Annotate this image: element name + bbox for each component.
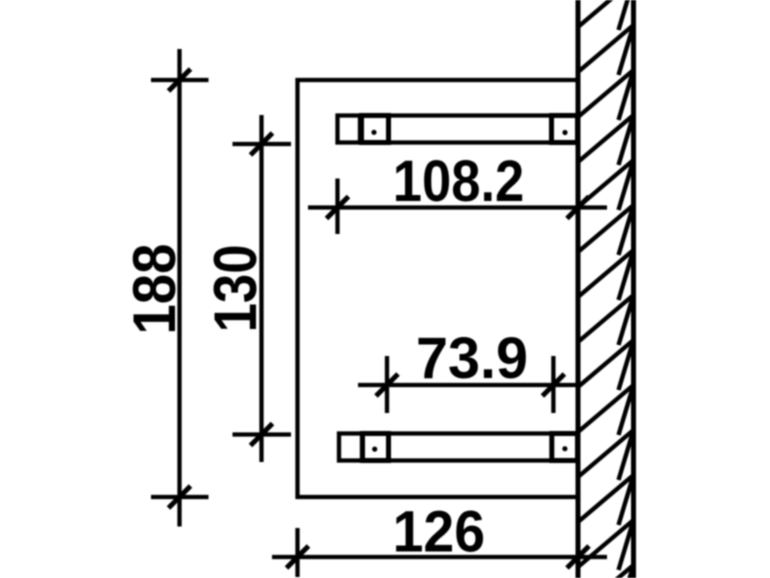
svg-text:73.9: 73.9 [416, 326, 528, 391]
svg-text:126: 126 [393, 499, 486, 564]
svg-text:108.2: 108.2 [393, 149, 525, 214]
svg-text:188: 188 [121, 244, 188, 335]
svg-text:130: 130 [202, 244, 269, 332]
